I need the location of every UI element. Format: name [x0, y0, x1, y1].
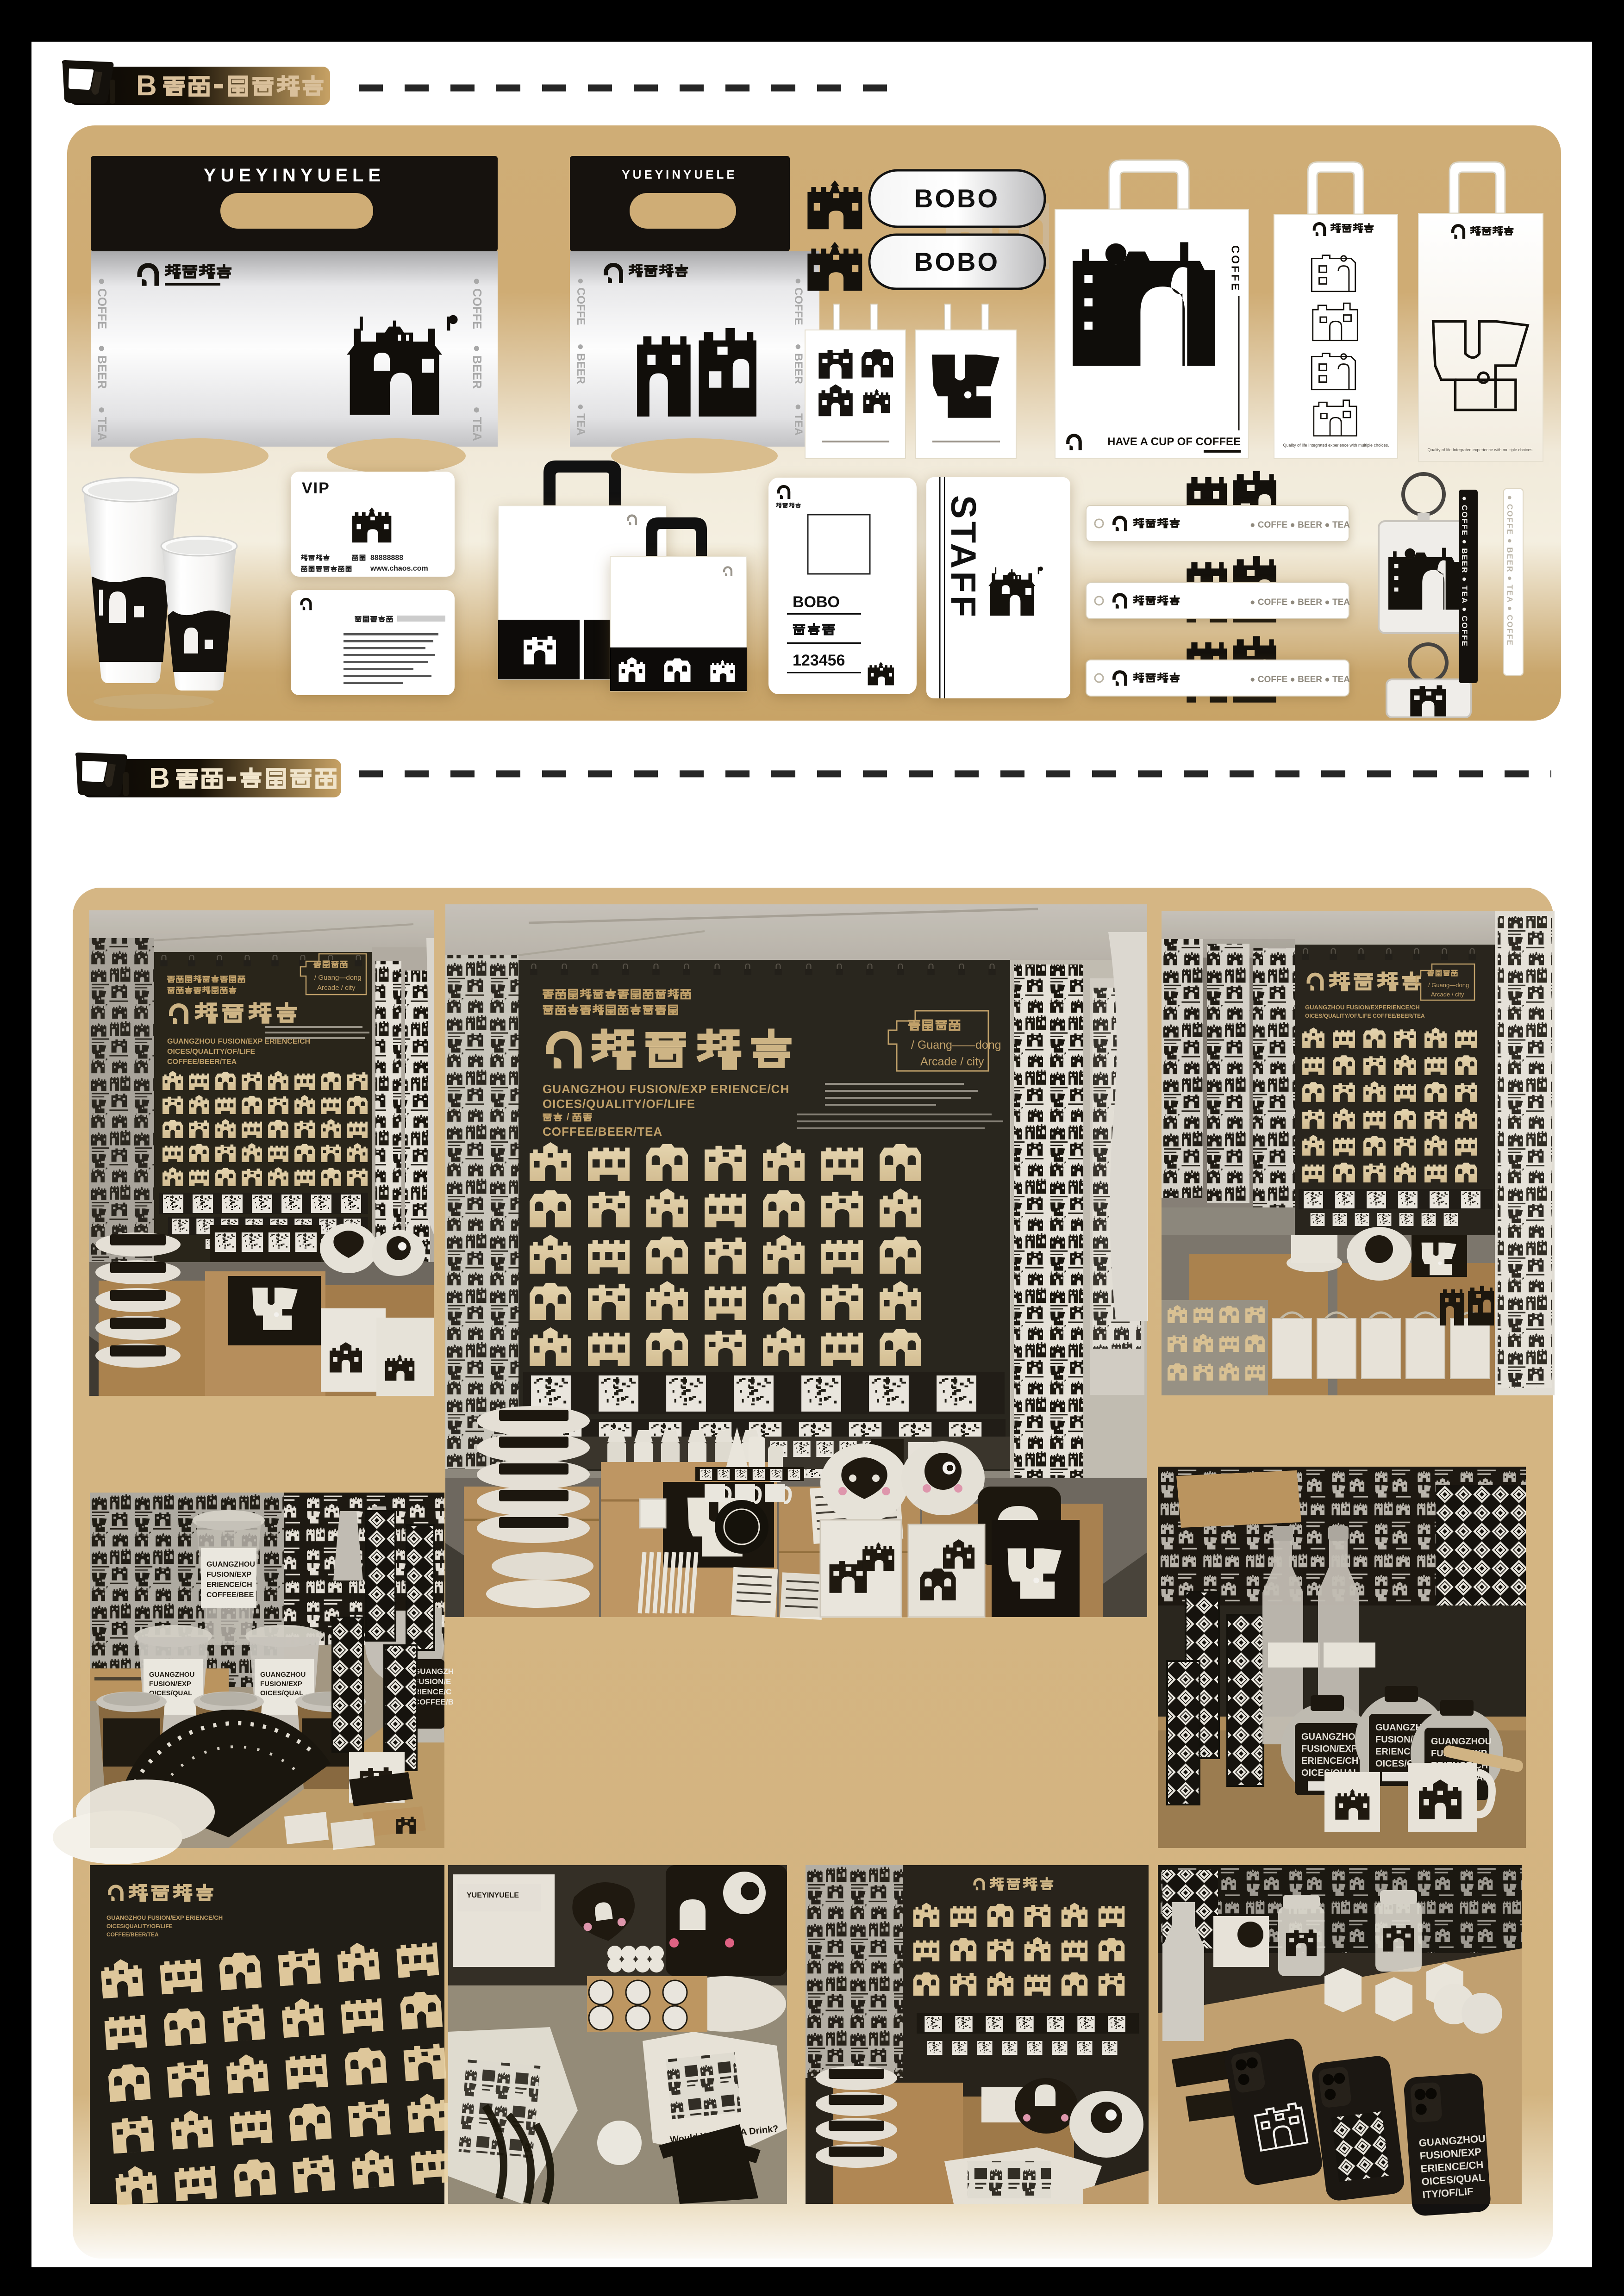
svg-text:VIP: VIP: [302, 479, 330, 497]
svg-text:● BEER: ● BEER: [792, 343, 805, 384]
svg-text:YUEYINYUELE: YUEYINYUELE: [204, 165, 385, 186]
svg-text:88888888: 88888888: [370, 554, 403, 562]
svg-text:B: B: [149, 762, 170, 794]
svg-text:● TEA: ● TEA: [575, 404, 587, 436]
svg-text:BOBO: BOBO: [914, 247, 999, 276]
svg-text:● COFFE ● BEER ● TEA ● COFFE: ● COFFE ● BEER ● TEA ● COFFE: [1505, 495, 1514, 646]
svg-text:www.chaos.com: www.chaos.com: [370, 565, 428, 572]
svg-text:● COFFE: ● COFFE: [575, 278, 587, 325]
svg-text:Quality of life Integrated exp: Quality of life Integrated experience wi…: [1427, 448, 1533, 452]
svg-text:● COFFE ● BEER ● TEA ● COFFE: ● COFFE ● BEER ● TEA ● COFFE: [1460, 496, 1469, 647]
svg-text:● TEA: ● TEA: [470, 406, 484, 441]
svg-text:BOBO: BOBO: [914, 184, 999, 213]
svg-text:YUEYINYUELE: YUEYINYUELE: [622, 168, 737, 181]
svg-text:● BEER: ● BEER: [95, 345, 109, 389]
svg-text:B: B: [136, 70, 157, 102]
svg-text:● BEER: ● BEER: [575, 343, 587, 384]
svg-text:● BEER: ● BEER: [470, 345, 484, 389]
svg-text:● COFFE ● BEER ● TEA: ● COFFE ● BEER ● TEA: [1250, 520, 1350, 530]
svg-text:● TEA: ● TEA: [792, 404, 805, 436]
svg-text:● COFFE: ● COFFE: [470, 278, 484, 329]
svg-text:● COFFE: ● COFFE: [95, 278, 109, 329]
svg-text:STAFF: STAFF: [943, 495, 983, 620]
svg-text:● COFFE ● BEER ● TEA: ● COFFE ● BEER ● TEA: [1250, 597, 1350, 607]
svg-text:● COFFE: ● COFFE: [792, 278, 805, 325]
svg-text:123456: 123456: [793, 652, 845, 669]
svg-text:COFFE: COFFE: [1229, 245, 1242, 292]
svg-text:● TEA: ● TEA: [95, 406, 109, 441]
svg-text:● COFFE ● BEER ● TEA: ● COFFE ● BEER ● TEA: [1250, 675, 1350, 684]
svg-text:BOBO: BOBO: [793, 593, 840, 611]
svg-text:HAVE A CUP OF COFFEE: HAVE A CUP OF COFFEE: [1107, 436, 1241, 448]
svg-text:Quality of life Integrated exp: Quality of life Integrated experience wi…: [1283, 443, 1389, 448]
